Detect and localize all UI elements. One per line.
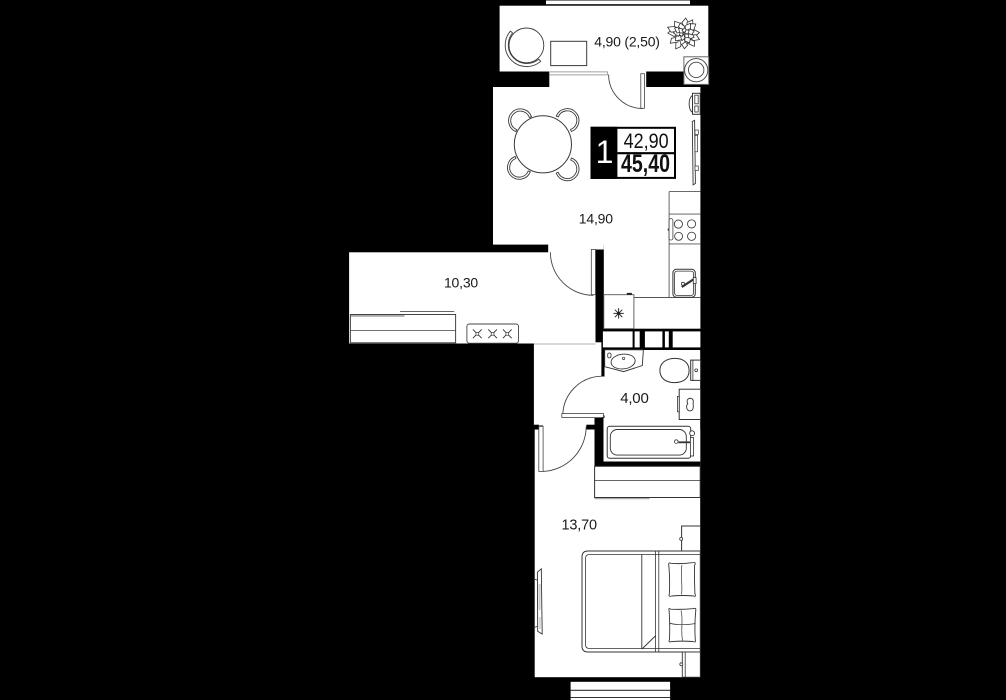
svg-text:4,00: 4,00 — [620, 390, 648, 407]
svg-text:14,90: 14,90 — [579, 210, 613, 226]
svg-text:1: 1 — [596, 134, 614, 170]
svg-text:4,90 (2,50): 4,90 (2,50) — [594, 34, 660, 50]
svg-text:10,30: 10,30 — [444, 274, 478, 290]
svg-text:45,40: 45,40 — [621, 150, 670, 178]
svg-text:13,70: 13,70 — [562, 518, 597, 534]
